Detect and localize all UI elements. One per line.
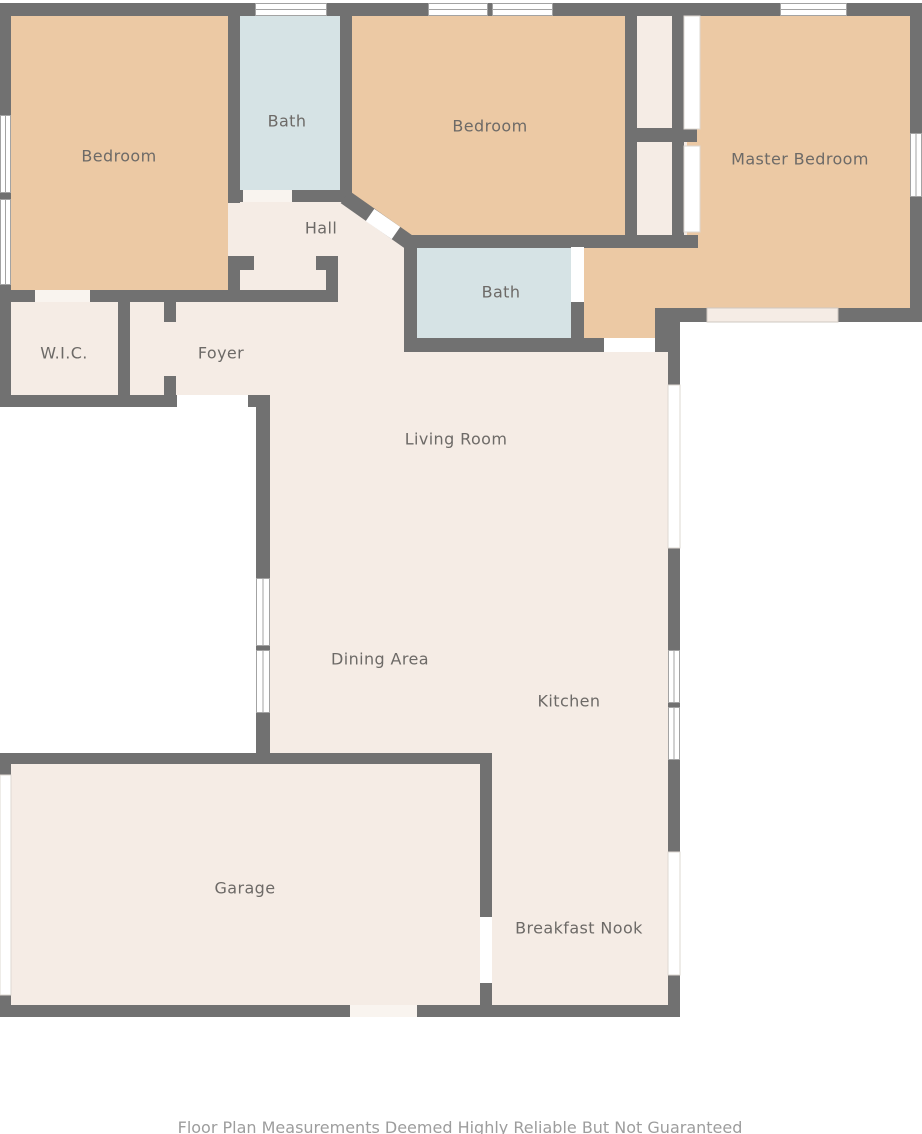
floor-plan-page: Bedroom Bath Bedroom Master Bedroom Hall…	[0, 0, 922, 1134]
garage-vehicle-door	[0, 775, 11, 995]
window-bath-1-top	[255, 4, 327, 16]
wall	[164, 302, 176, 322]
room-bath-1-area	[234, 10, 346, 196]
room-label-foyer: Foyer	[198, 344, 244, 363]
wall	[0, 753, 11, 775]
room-label-kitchen: Kitchen	[538, 692, 601, 711]
window-master-top	[780, 4, 847, 16]
closet-door-bottom	[684, 146, 700, 232]
wall	[118, 302, 130, 398]
wall	[0, 1005, 680, 1017]
window-master-right	[911, 133, 922, 197]
floor-kitchen-nook	[480, 242, 680, 1017]
closet-door-top	[684, 16, 700, 129]
wic-door-opening	[35, 290, 90, 302]
room-label-bedroom-1: Bedroom	[81, 147, 156, 166]
disclaimer-text: Floor Plan Measurements Deemed Highly Re…	[178, 1118, 743, 1134]
room-label-bath-2: Bath	[482, 283, 521, 302]
window-dining-left-upper	[257, 578, 270, 646]
window-dining-left-lower	[257, 650, 270, 713]
master-suite-door-opening	[604, 338, 655, 352]
wall	[404, 235, 698, 248]
garage-door-opening-interior	[480, 917, 492, 983]
window-bedroom-2-top-left	[428, 4, 488, 16]
window-bedroom-1-left-lower	[1, 199, 11, 285]
bedroom-1-door-opening	[228, 203, 240, 256]
window-kitchen-right-lower	[669, 707, 680, 760]
window-bedroom-1-left-upper	[1, 115, 11, 193]
master-bottom-window	[707, 308, 838, 322]
bath-1-door-opening	[243, 190, 292, 202]
wall	[340, 3, 352, 202]
garage-rear-door-opening	[350, 1005, 417, 1017]
wall	[625, 3, 637, 248]
wall	[228, 3, 240, 203]
wall	[655, 308, 680, 352]
floor-plan-drawing	[0, 0, 922, 1134]
window-bedroom-2-top-right	[492, 4, 553, 16]
entry-door-opening	[177, 395, 248, 407]
breakfast-nook-opening	[668, 852, 680, 975]
window-kitchen-right-upper	[669, 650, 680, 703]
living-room-sliding-door	[668, 385, 680, 548]
bath-2-door-opening	[571, 247, 584, 302]
wall	[672, 3, 684, 248]
wall	[0, 753, 492, 764]
room-label-dining-area: Dining Area	[331, 650, 429, 669]
room-label-living-room: Living Room	[405, 430, 508, 449]
room-label-hall: Hall	[305, 219, 337, 238]
room-label-wic: W.I.C.	[40, 344, 88, 363]
room-label-garage: Garage	[215, 879, 276, 898]
wall	[404, 235, 417, 352]
room-label-breakfast-nook: Breakfast Nook	[515, 919, 643, 938]
wall	[164, 376, 176, 398]
room-label-bath-1: Bath	[268, 112, 307, 131]
room-label-bedroom-2: Bedroom	[452, 117, 527, 136]
room-label-master-bedroom: Master Bedroom	[731, 150, 869, 169]
